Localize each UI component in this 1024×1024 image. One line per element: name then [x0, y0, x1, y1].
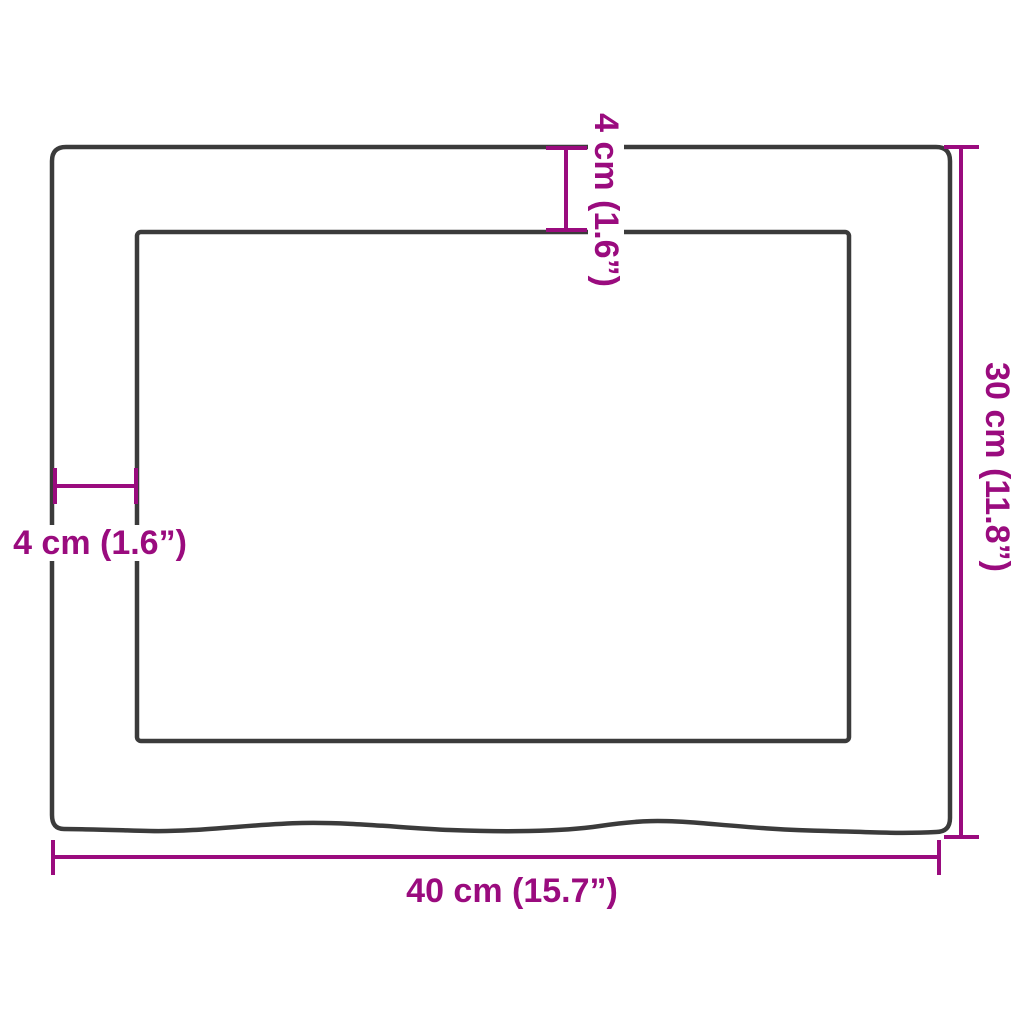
panel-outer-edge [52, 147, 950, 833]
left-inset-dimension-label: 4 cm (1.6”) [9, 525, 191, 561]
left-inset-dimension-line [55, 468, 136, 504]
width-dimension-label: 40 cm (15.7”) [382, 873, 642, 909]
top-inset-dimension-line [546, 148, 587, 230]
top-inset-dimension-label: 4 cm (1.6”) [588, 110, 624, 290]
diagram-canvas [0, 0, 1024, 1024]
width-dimension-line [53, 840, 939, 875]
height-dimension-label: 30 cm (11.8”) [979, 357, 1015, 577]
dimension-diagram: 4 cm (1.6”) 4 cm (1.6”) 30 cm (11.8”) 40… [0, 0, 1024, 1024]
panel-inner-edge [137, 232, 849, 741]
